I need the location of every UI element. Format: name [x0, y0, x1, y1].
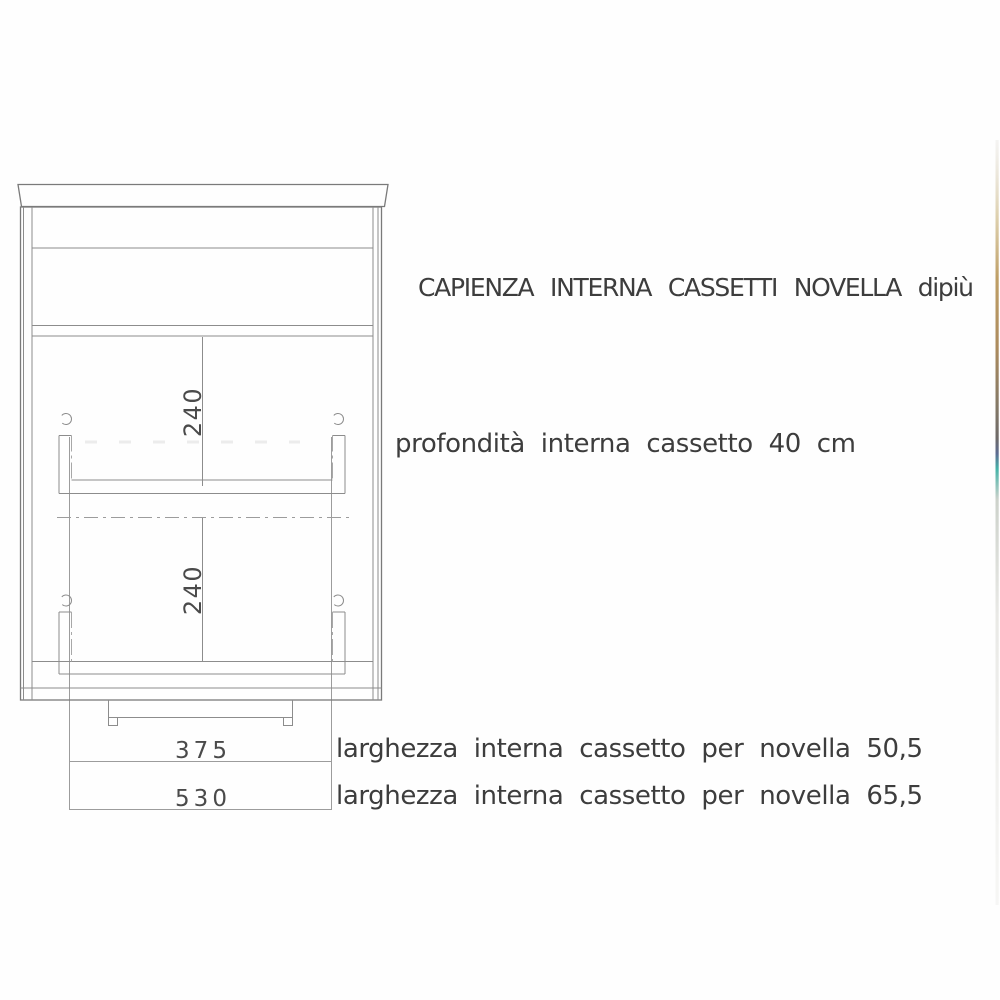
note-depth: profondità interna cassetto 40 cm — [395, 429, 857, 459]
note-width-novella-655: larghezza interna cassetto per novella 6… — [336, 781, 924, 811]
runner-hole-right — [330, 411, 345, 426]
text-annotations: CAPIENZA INTERNA CASSETTI NOVELLA dipiù … — [336, 273, 975, 811]
runner-hole-right — [330, 593, 345, 608]
scan-edge-artifact — [996, 140, 999, 905]
plinth — [109, 700, 293, 726]
foot-left — [109, 718, 118, 726]
foot-right — [284, 718, 293, 726]
note-width-novella-505: larghezza interna cassetto per novella 5… — [336, 734, 924, 764]
dim-label-240-lower: 240 — [179, 565, 207, 615]
dim-label-530: 530 — [175, 786, 231, 812]
countertop — [18, 185, 388, 207]
scanned-catalog-page: 375 530 240 240 CAPIENZA INTERNA CASSETT… — [0, 0, 1000, 1000]
carcass-outline — [21, 207, 382, 700]
cabinet-front-view — [18, 185, 388, 811]
technical-drawing: 375 530 240 240 CAPIENZA INTERNA CASSETT… — [0, 0, 1000, 1000]
dim-label-375: 375 — [175, 738, 231, 764]
runner-hole-left — [58, 593, 73, 608]
dim-label-240-upper: 240 — [179, 387, 207, 437]
runner-hole-left — [58, 411, 73, 426]
dimension-annotations: 375 530 240 240 — [70, 387, 332, 812]
drawing-title: CAPIENZA INTERNA CASSETTI NOVELLA dipiù — [418, 273, 975, 302]
